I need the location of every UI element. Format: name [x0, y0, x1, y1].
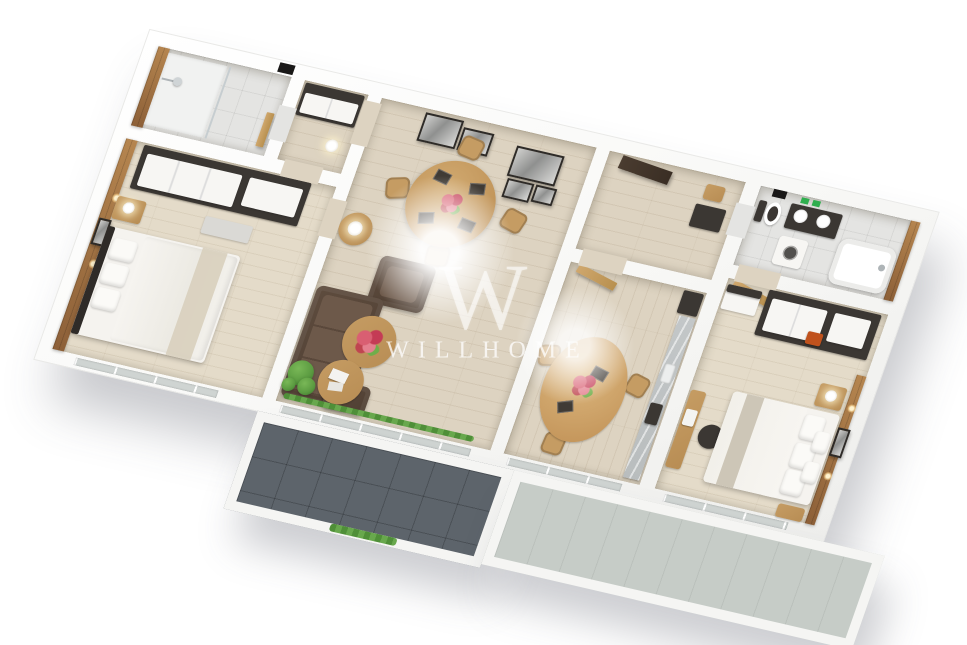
placemat — [418, 212, 435, 224]
bench — [200, 216, 253, 244]
placemat — [557, 400, 573, 413]
apartment-plan — [35, 30, 939, 542]
pillow — [98, 262, 130, 288]
wall-art-frame — [530, 185, 557, 207]
fridge — [676, 290, 704, 317]
armchair-cushion — [378, 265, 425, 303]
wall-niche — [772, 189, 788, 200]
dining-chair — [497, 206, 529, 236]
towel — [800, 197, 810, 204]
bathroom-1 — [131, 46, 292, 156]
floorplan-scene: W WILLHOME — [0, 0, 967, 645]
pillow — [107, 237, 139, 263]
pillow — [90, 286, 122, 312]
sconce-light — [822, 471, 834, 481]
floor-lamp — [323, 138, 340, 153]
towel — [812, 200, 822, 207]
books — [327, 381, 344, 391]
wall-art-frame — [501, 178, 534, 203]
placemat — [468, 183, 486, 195]
sconce-light — [846, 403, 858, 413]
vanity — [783, 203, 843, 239]
entry-mirror — [702, 183, 726, 202]
entry-door — [618, 155, 673, 185]
wall-niche — [277, 62, 296, 75]
console-table — [688, 203, 726, 233]
